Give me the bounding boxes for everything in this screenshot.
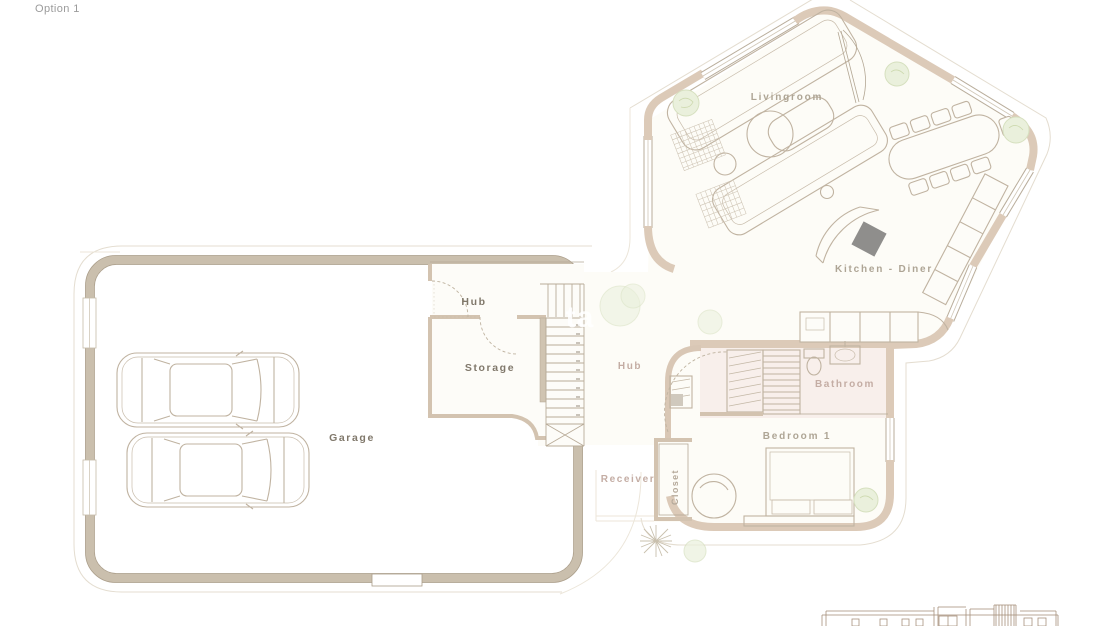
label-bathroom: Bathroom bbox=[815, 379, 875, 390]
palm-tree bbox=[640, 525, 672, 557]
label-livingroom: Livingroom bbox=[751, 92, 823, 103]
car-1 bbox=[117, 351, 299, 429]
inset-elevation bbox=[822, 605, 1058, 626]
label-kitchen-diner: Kitchen - Diner bbox=[835, 264, 933, 275]
car-2 bbox=[127, 431, 309, 509]
label-receiver: Receiver bbox=[601, 474, 656, 485]
garage-window-top bbox=[83, 298, 96, 348]
floor-plan-page: Livingroom Kitchen - Diner Hub Storage G… bbox=[0, 0, 1110, 626]
floor-plan-canvas: Livingroom Kitchen - Diner Hub Storage G… bbox=[0, 0, 1110, 626]
garage-door-step bbox=[372, 574, 422, 586]
label-bedroom-1: Bedroom 1 bbox=[763, 431, 831, 442]
label-hub-entry: Hub bbox=[618, 361, 642, 372]
hub-storage-block bbox=[430, 262, 584, 446]
watermark: ta bbox=[566, 301, 595, 334]
garage-window-bottom bbox=[83, 460, 96, 515]
label-garage: Garage bbox=[329, 432, 375, 444]
label-storage: Storage bbox=[465, 362, 515, 374]
label-closet: Closet bbox=[670, 469, 680, 505]
label-hub-upper: Hub bbox=[461, 296, 486, 308]
page-title: Option 1 bbox=[35, 3, 80, 15]
